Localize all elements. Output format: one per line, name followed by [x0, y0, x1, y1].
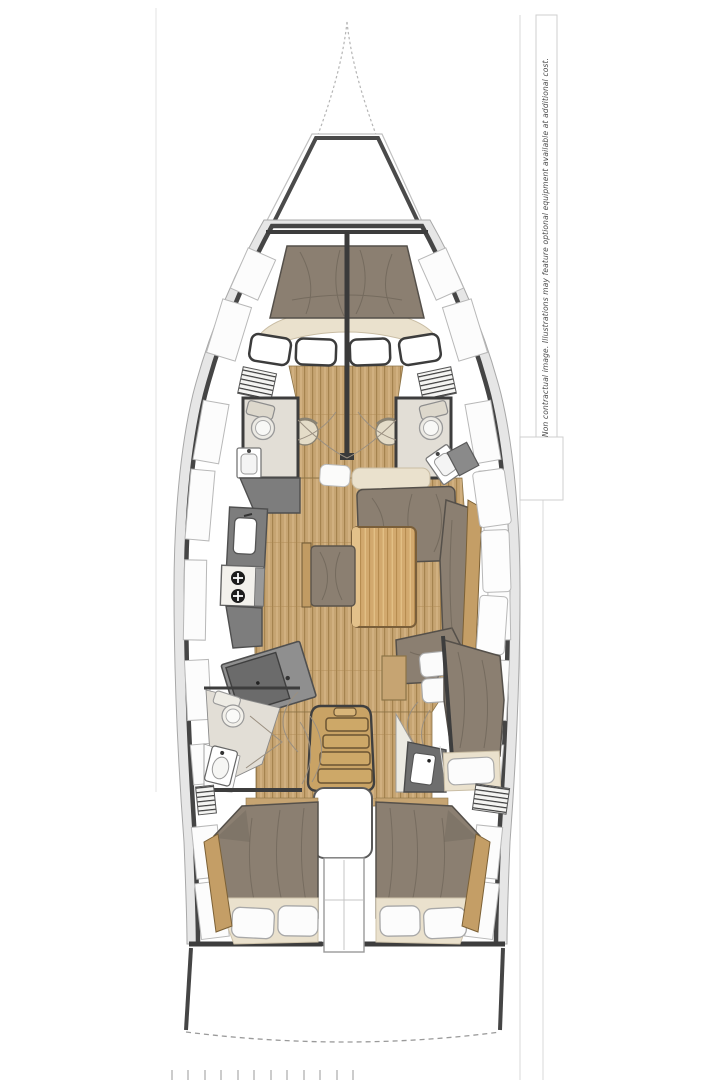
bench-back-wood [302, 543, 311, 607]
deck-plan-drawing [0, 0, 720, 1080]
bowsprit [316, 22, 347, 140]
settee-pillow-white [319, 464, 350, 487]
center-bulkhead-cap [340, 453, 354, 460]
settee-pillow-cream [352, 468, 430, 489]
stove [220, 565, 264, 606]
step [326, 718, 368, 731]
bench-cushion [311, 546, 355, 606]
step [318, 769, 372, 783]
burner [231, 589, 245, 603]
anchor-locker [272, 138, 420, 226]
deck-plan-sheet: Non contractual image. Illustrations may… [0, 0, 720, 1080]
pillow [423, 907, 467, 939]
step-top [334, 708, 356, 716]
deck-hatch [398, 333, 442, 366]
washbasin [237, 448, 261, 478]
companionway-steps [308, 706, 374, 791]
bowsprit-right [347, 22, 378, 140]
sink-counter [226, 507, 267, 569]
side-seat-wood [382, 656, 406, 700]
galley-sink [233, 517, 257, 554]
stern-scale-ticks [172, 1070, 353, 1080]
port-aft-louver-vent [196, 785, 217, 815]
pillow [278, 906, 319, 937]
port-bench [302, 543, 355, 607]
burner [231, 571, 245, 585]
deck-hatch [296, 338, 337, 365]
deck-hatch [248, 333, 292, 366]
salon-table [352, 527, 416, 627]
starboard-aft-berth [443, 636, 510, 814]
counter-aft [226, 606, 262, 648]
pillow [231, 907, 275, 939]
stern-outline [186, 948, 503, 1042]
pillow [380, 906, 421, 937]
deck-hatch [350, 338, 391, 365]
step [320, 752, 370, 765]
step [323, 735, 369, 748]
disclaimer-text: Non contractual image. Illustrations may… [535, 15, 557, 437]
louver-vent [472, 784, 509, 814]
berth-mattress [444, 640, 504, 756]
revision-box [520, 437, 563, 500]
pillow [447, 757, 494, 785]
washbasin [410, 753, 436, 786]
